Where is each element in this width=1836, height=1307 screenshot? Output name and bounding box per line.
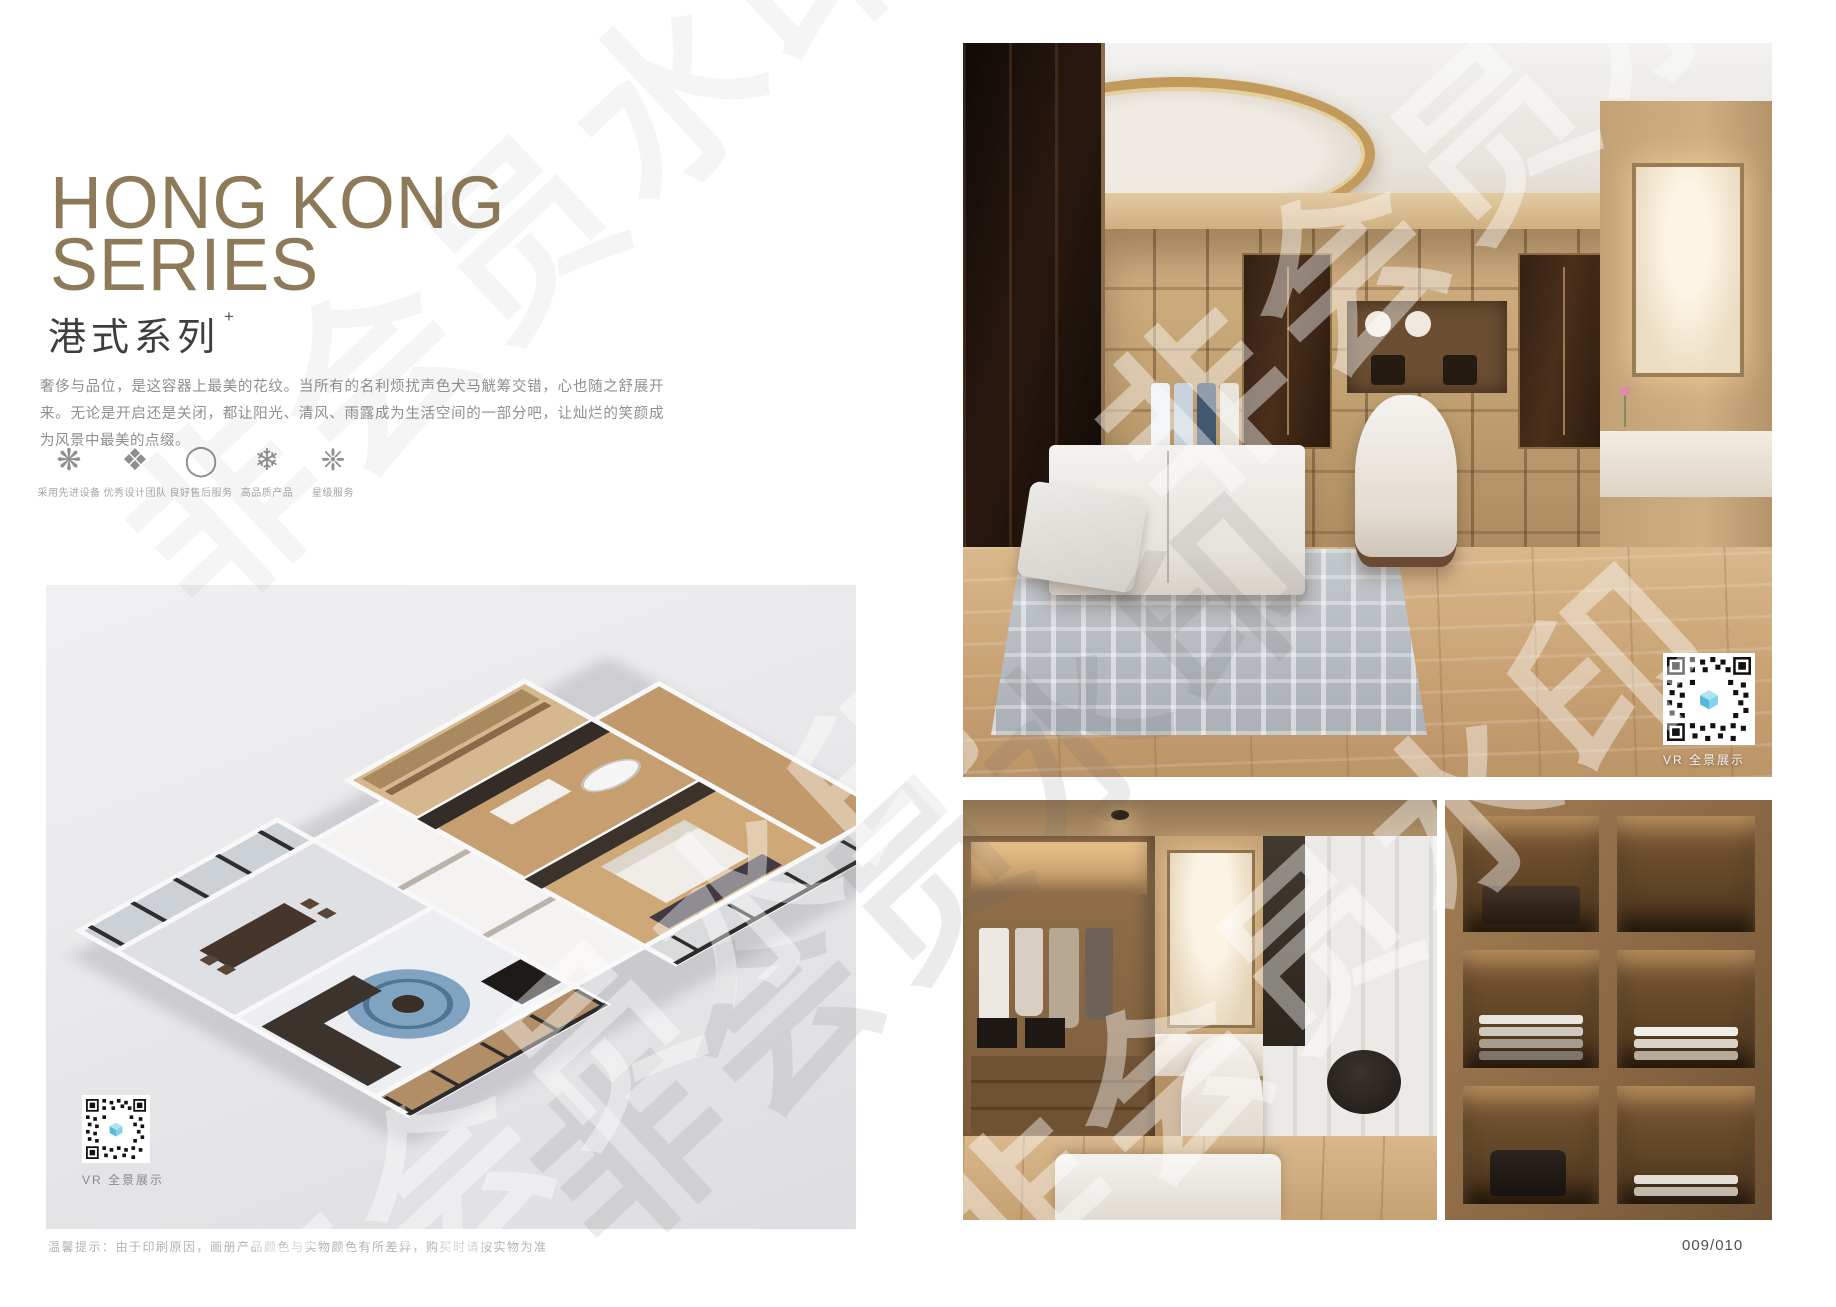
flower-vase: [1618, 387, 1632, 427]
shelf-cell: [1463, 950, 1599, 1068]
snowflake-icon: ❄: [254, 444, 279, 478]
paneled-door-wall: [1263, 836, 1437, 1142]
folded-garment: [1634, 1051, 1739, 1060]
floorplan-vr-label: VR 全景展示: [82, 1171, 164, 1188]
shelf-closeup-photo: [1445, 800, 1772, 1220]
folded-garment: [1479, 1051, 1582, 1060]
dark-mirror-column: [1263, 836, 1305, 1046]
folded-garment: [1634, 1039, 1739, 1048]
plus-mark: +: [224, 307, 234, 326]
floorplan-vr-qr-code: [82, 1095, 150, 1163]
lighted-top-shelf: [971, 842, 1147, 894]
leather-pouf: [1327, 1050, 1401, 1114]
dark-wardrobe-doors-left: [1242, 253, 1332, 449]
white-hat: [1405, 311, 1431, 337]
folded-garment: [1479, 1015, 1582, 1024]
isometric-floorplan-render: [46, 585, 856, 1229]
folded-garment: [1479, 1027, 1582, 1036]
storage-box: [977, 1018, 1017, 1048]
shelf-cell: [1617, 816, 1755, 932]
page-number: 009/010: [1682, 1237, 1743, 1254]
print-disclaimer: 温馨提示：由于印刷原因，画册产品颜色与实物颜色有所差异，购买时请按实物为准: [48, 1238, 548, 1255]
hanging-garment: [1085, 928, 1113, 1020]
folded-garment: [1479, 1039, 1582, 1048]
folded-garment: [1634, 1187, 1739, 1196]
vanity-mirror: [1632, 163, 1744, 377]
hanging-garment: [1015, 928, 1043, 1016]
vanity-mirror: [1167, 850, 1255, 1028]
hanging-garment: [1049, 928, 1079, 1028]
ceiling-spotlight: [1111, 810, 1129, 820]
feature-badges: ❋ 采用先进设备 ❖ 优秀设计团队 ◯ 良好售后服务 ❄ 高品质产品 ❈ 星级服…: [36, 444, 366, 499]
white-hat: [1365, 311, 1391, 337]
feature-item-quality: ❄ 高品质产品: [234, 444, 300, 499]
folded-clothes-stack: [1634, 1175, 1739, 1196]
catalog-page: HONG KONG SERIES 港式系列+ 奢侈与品位，是这容器上最美的花纹。…: [0, 0, 1836, 1307]
white-wingback-chair: [1355, 395, 1457, 567]
suitcase: [1482, 886, 1580, 924]
photo-vr-label: VR 全景展示: [1663, 751, 1745, 768]
feature-label: 高品质产品: [241, 484, 294, 499]
qr-pattern: [86, 1099, 146, 1159]
shelf-cell: [1463, 1086, 1599, 1204]
star-service-icon: ❈: [320, 444, 345, 478]
series-title-en: HONG KONG SERIES: [50, 172, 505, 296]
leather-bag: [1490, 1150, 1566, 1196]
folded-garment: [1634, 1027, 1739, 1036]
floorplan-panel: VR 全景展示: [46, 585, 856, 1229]
folded-garment: [1634, 1175, 1739, 1184]
folded-clothes-stack: [1634, 1027, 1739, 1060]
feature-item-star-service: ❈ 星级服务: [300, 444, 366, 499]
feature-label: 优秀设计团队: [104, 484, 167, 499]
drawer-stack: [971, 1056, 1147, 1134]
feature-label: 良好售后服务: [170, 484, 233, 499]
qr-pattern: [1667, 657, 1751, 741]
pinwheel-flower-icon: ❋: [56, 444, 81, 478]
feature-item-after-sales: ◯ 良好售后服务: [168, 444, 234, 499]
draped-blanket: [1016, 480, 1148, 593]
handbag: [1371, 355, 1405, 385]
rosette-icon: ❖: [122, 444, 149, 478]
feature-label: 采用先进设备: [38, 484, 101, 499]
folded-clothes-stack: [1479, 1015, 1582, 1060]
series-description: 奢侈与品位，是这容器上最美的花纹。当所有的名利烦扰声色犬马觥筹交错，心也随之舒展…: [40, 374, 664, 455]
storage-box: [1025, 1018, 1065, 1048]
walk-in-closet-photo: VR 全景展示: [963, 43, 1772, 777]
bed-corner: [1055, 1154, 1281, 1220]
feature-item-equipment: ❋ 采用先进设备: [36, 444, 102, 499]
dressing-corner-photo: [963, 800, 1437, 1220]
ring-icon: ◯: [184, 444, 218, 478]
shelf-cell: [1617, 950, 1755, 1068]
dark-wardrobe-doors-right: [1518, 253, 1608, 449]
series-title-cn-text: 港式系列: [48, 317, 220, 359]
handbag: [1443, 355, 1477, 385]
vanity-desk: [1600, 431, 1772, 497]
series-title-cn: 港式系列+: [48, 306, 234, 361]
photo-vr-qr-code: [1663, 653, 1755, 745]
shelf-cell: [1617, 1086, 1755, 1204]
feature-item-design-team: ❖ 优秀设计团队: [102, 444, 168, 499]
upholstered-bench: [1049, 445, 1305, 595]
feature-label: 星级服务: [312, 484, 354, 499]
hanging-garment: [979, 928, 1009, 1024]
open-wardrobe: [963, 836, 1155, 1142]
hat-cubby: [1347, 301, 1507, 393]
shelf-cell: [1463, 816, 1599, 932]
